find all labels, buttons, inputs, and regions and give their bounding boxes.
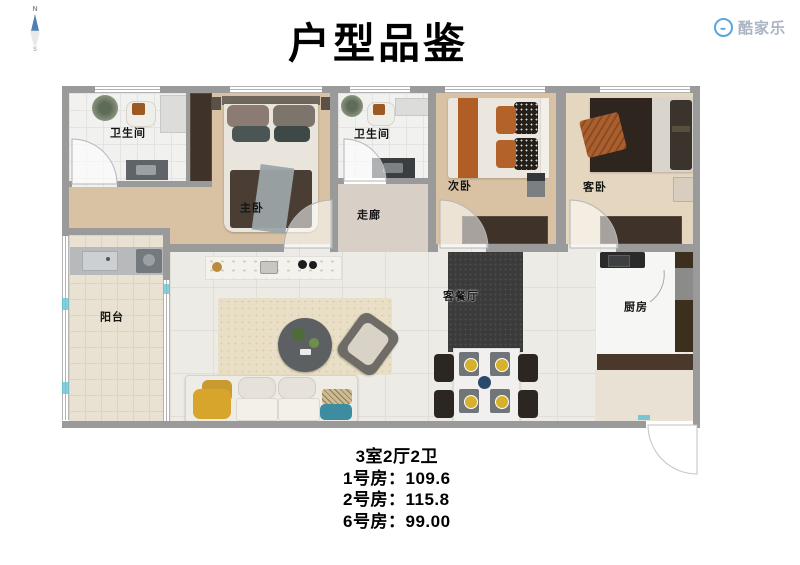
room-area-label: 1号房： bbox=[343, 469, 405, 488]
sofa-pillow-patterned bbox=[322, 389, 352, 404]
room-area-value: 109.6 bbox=[405, 469, 450, 488]
wall-living-1 bbox=[163, 244, 284, 252]
window-guest bbox=[600, 86, 690, 93]
outer-wall-right bbox=[693, 86, 700, 428]
floorplan-canvas: 卫生间 主卧 卫生间 走廊 次卧 客卧 阳台 客餐厅 厨房 bbox=[62, 86, 700, 428]
wall-bedroom2-guest bbox=[556, 93, 566, 252]
layout-summary: 3室2厅2卫 bbox=[343, 446, 451, 468]
console-decor-dark2 bbox=[309, 261, 317, 269]
bedroom2-pillow-orange-top bbox=[496, 106, 516, 134]
plate-1 bbox=[464, 358, 478, 372]
room-area-value: 99.00 bbox=[405, 512, 450, 531]
brand-name: 酷家乐 bbox=[738, 17, 786, 38]
wall-living-2 bbox=[332, 244, 338, 252]
wall-living-4 bbox=[486, 244, 568, 252]
console-decor-tray bbox=[260, 261, 278, 274]
sofa-pillow-yellow-big bbox=[193, 389, 231, 419]
room-label-corridor: 走廊 bbox=[357, 211, 381, 222]
window-marker-2 bbox=[62, 382, 69, 394]
washing-machine-door bbox=[143, 254, 155, 266]
bathroom1-right-wall bbox=[186, 93, 190, 187]
window-marker-1 bbox=[62, 298, 69, 310]
nightstand-left bbox=[212, 97, 221, 110]
sofa-seat-cushion-2 bbox=[278, 398, 320, 421]
bedroom2-pillow-orange-bottom bbox=[496, 140, 516, 168]
balcony-wall-top bbox=[62, 228, 170, 235]
dining-chair-4 bbox=[518, 390, 538, 418]
master-bed-pillow-left bbox=[227, 105, 269, 127]
kitchen-sink bbox=[608, 255, 630, 267]
room-label-bathroom1: 卫生间 bbox=[110, 129, 146, 140]
bedroom2-pillow-pattern-bottom bbox=[514, 138, 538, 170]
sofa-back-pillow-1 bbox=[238, 377, 276, 399]
window-bedroom2 bbox=[445, 86, 545, 93]
sofa-pillow-teal bbox=[320, 404, 352, 420]
coffee-table bbox=[278, 318, 332, 372]
bathroom2-toilet-tank bbox=[373, 104, 385, 115]
guest-bed-pillows bbox=[670, 100, 692, 170]
outer-wall-left-top bbox=[62, 86, 69, 236]
plate-3 bbox=[464, 395, 478, 409]
wall-master-bath2 bbox=[330, 93, 338, 252]
room-area-label: 2号房： bbox=[343, 490, 405, 509]
plate-4 bbox=[495, 395, 509, 409]
room-area-line: 2号房：115.8 bbox=[343, 489, 451, 511]
bathroom1-toilet-tank bbox=[132, 103, 145, 115]
balcony-glass-door bbox=[163, 280, 170, 421]
room-area-line: 6号房：99.00 bbox=[343, 511, 451, 533]
bathroom2-bottom-wall-left bbox=[338, 178, 344, 184]
entry-floor bbox=[595, 370, 693, 421]
sofa-back-pillow-2 bbox=[278, 377, 316, 399]
kitchen-cabinet-lower bbox=[675, 300, 693, 352]
window-bathroom2 bbox=[350, 86, 410, 93]
bathroom1-plant bbox=[92, 95, 118, 121]
room-label-balcony: 阳台 bbox=[100, 313, 124, 324]
master-bed-cushion-right bbox=[274, 126, 310, 142]
bathroom2-bottom-wall-right bbox=[386, 178, 428, 184]
bedroom2-pillow-pattern-top bbox=[514, 102, 538, 134]
bathroom2-shelf bbox=[395, 98, 430, 116]
wall-living-5 bbox=[616, 244, 700, 252]
room-area-label: 6号房： bbox=[343, 512, 405, 531]
kitchen-counter-bottom bbox=[597, 354, 693, 370]
balcony-partition-top bbox=[163, 228, 170, 280]
console-decor-dark bbox=[298, 260, 307, 269]
window-bathroom1 bbox=[95, 86, 160, 93]
window-master bbox=[230, 86, 322, 93]
balcony-sink bbox=[82, 251, 118, 271]
dining-chair-1 bbox=[434, 354, 454, 382]
smiley-face-icon bbox=[714, 18, 733, 37]
brand-logo: 酷家乐 bbox=[714, 17, 786, 38]
sofa-seat-cushion-1 bbox=[236, 398, 278, 421]
room-label-guest: 客卧 bbox=[583, 183, 607, 194]
coffee-table-plant bbox=[292, 328, 305, 341]
outer-wall-bottom-right bbox=[696, 421, 700, 428]
balcony-sink-drain bbox=[106, 257, 110, 261]
room-area-value: 115.8 bbox=[405, 490, 449, 509]
plate-2 bbox=[495, 358, 509, 372]
area-summary: 3室2厅2卫 1号房：109.6 2号房：115.8 6号房：99.00 bbox=[343, 446, 451, 532]
coffee-table-books bbox=[300, 349, 311, 355]
corridor-floor bbox=[338, 184, 428, 252]
bathroom2-vanity-sink bbox=[383, 163, 403, 173]
master-bed-pillow-right bbox=[273, 105, 315, 127]
nightstand-right bbox=[321, 97, 330, 110]
door-marker-balcony bbox=[163, 284, 170, 294]
bedroom2-desk-top bbox=[527, 173, 545, 181]
wall-corridor-bedroom2 bbox=[428, 93, 436, 252]
door-marker-entrance bbox=[638, 415, 650, 420]
master-wardrobe bbox=[190, 93, 212, 184]
room-area-line: 1号房：109.6 bbox=[343, 468, 451, 490]
room-label-living: 客餐厅 bbox=[443, 292, 479, 303]
bathroom1-vanity-sink bbox=[136, 165, 156, 175]
kitchen-fridge bbox=[675, 268, 693, 300]
guest-nightstand bbox=[673, 177, 694, 202]
bathroom1-shelf bbox=[160, 95, 188, 133]
bedroom2-bed-runner bbox=[458, 98, 478, 178]
bedroom2-headboard bbox=[540, 98, 549, 178]
room-label-kitchen: 厨房 bbox=[624, 303, 648, 314]
outer-wall-bottom-left bbox=[62, 421, 646, 428]
dining-chair-2 bbox=[434, 390, 454, 418]
floorplan-page: N S 户型品鉴 酷家乐 bbox=[0, 0, 800, 565]
room-label-bathroom2: 卫生间 bbox=[354, 130, 390, 141]
guest-wardrobe bbox=[600, 216, 682, 244]
room-label-master: 主卧 bbox=[240, 204, 264, 215]
coffee-table-plant2 bbox=[309, 338, 319, 348]
table-centerpiece bbox=[478, 376, 491, 389]
dining-chair-3 bbox=[518, 354, 538, 382]
master-bed-cushion-left bbox=[232, 126, 270, 142]
bathroom1-bottom-wall-right bbox=[117, 181, 212, 187]
wall-living-3 bbox=[428, 244, 438, 252]
console-decor-gold bbox=[212, 262, 222, 272]
page-title: 户型品鉴 bbox=[0, 10, 778, 71]
bedroom2-wardrobe bbox=[462, 216, 548, 244]
room-label-bedroom2: 次卧 bbox=[448, 182, 472, 193]
bathroom2-plant bbox=[341, 95, 363, 117]
guest-bed-pillow-gap bbox=[672, 126, 690, 132]
